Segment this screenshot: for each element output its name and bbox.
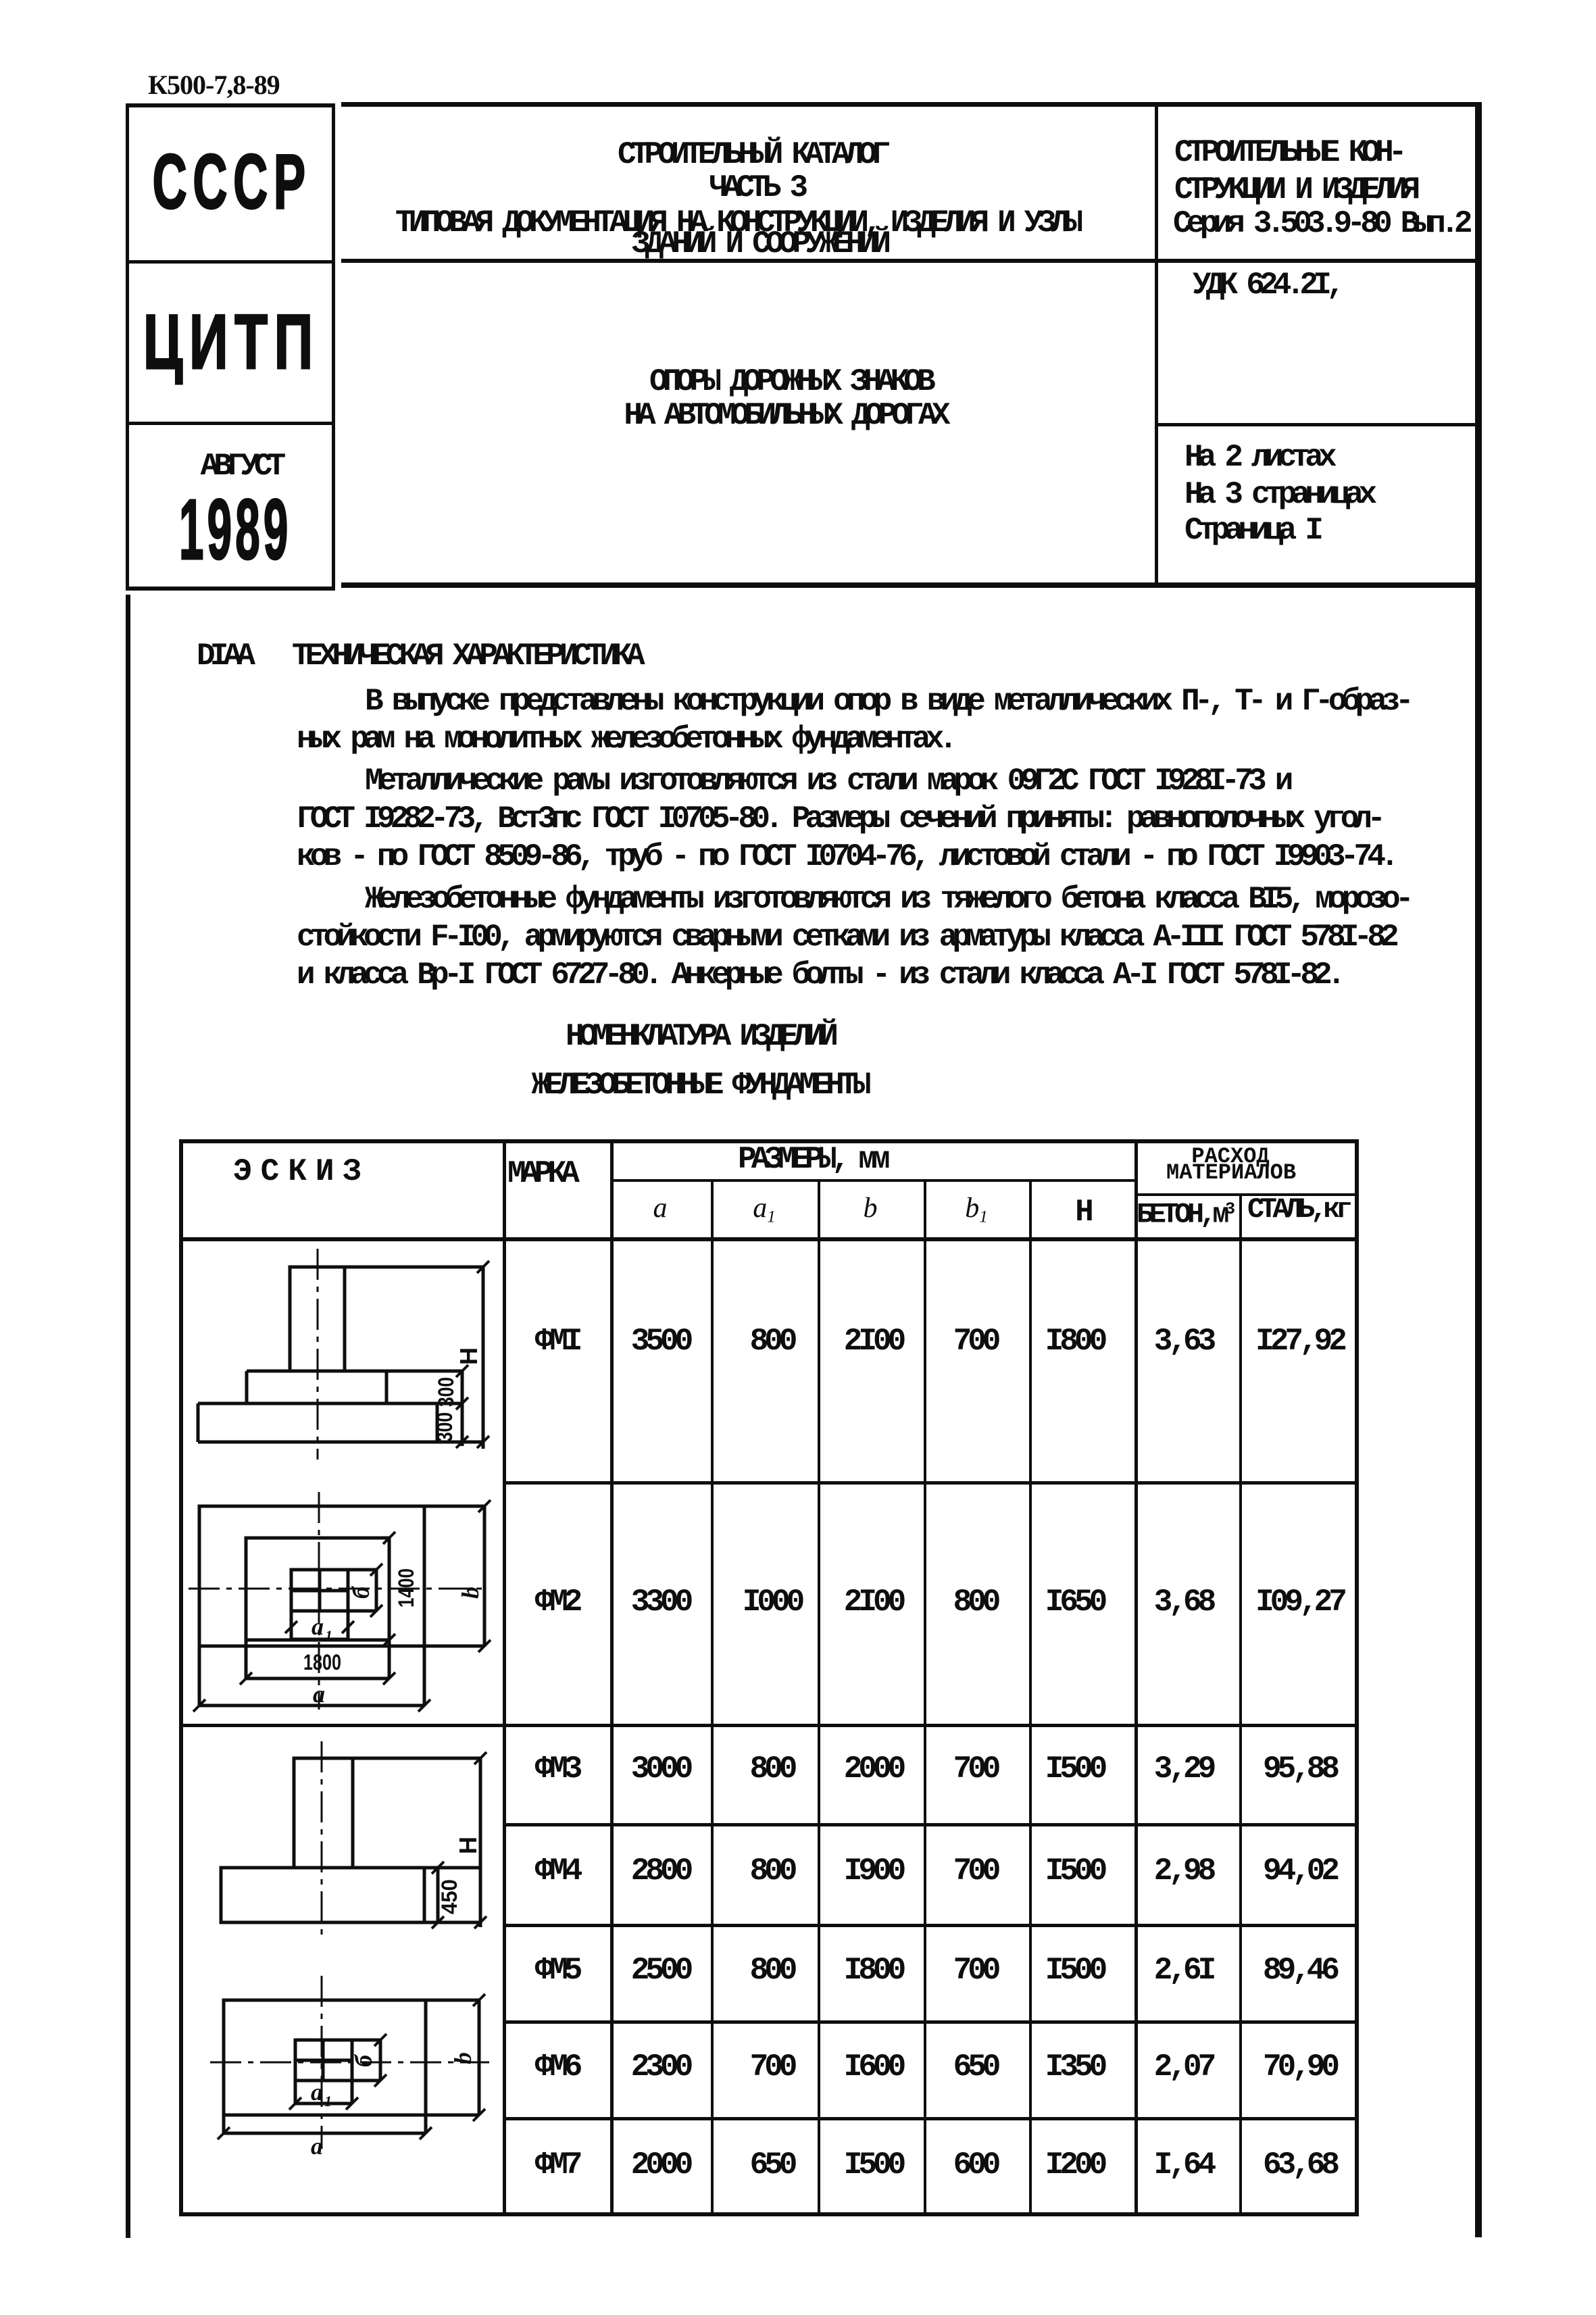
svg-text:450: 450 bbox=[437, 1879, 462, 1914]
svg-text:b: b bbox=[449, 2052, 476, 2064]
svg-text:1400: 1400 bbox=[394, 1568, 418, 1608]
svg-text:Н: Н bbox=[455, 1347, 482, 1365]
svg-text:a: a bbox=[311, 2133, 323, 2160]
svg-text:b: b bbox=[457, 1587, 484, 1599]
svg-text:300: 300 bbox=[434, 1377, 458, 1407]
svg-text:300: 300 bbox=[432, 1412, 457, 1442]
svg-text:б: б bbox=[347, 1585, 374, 1599]
svg-text:a1: a1 bbox=[311, 2078, 332, 2110]
svg-text:1800: 1800 bbox=[303, 1650, 341, 1674]
svg-text:a: a bbox=[313, 1681, 325, 1708]
svg-text:Н: Н bbox=[454, 1837, 482, 1854]
svg-text:a1: a1 bbox=[311, 1613, 332, 1644]
svg-text:б: б bbox=[350, 2053, 377, 2067]
